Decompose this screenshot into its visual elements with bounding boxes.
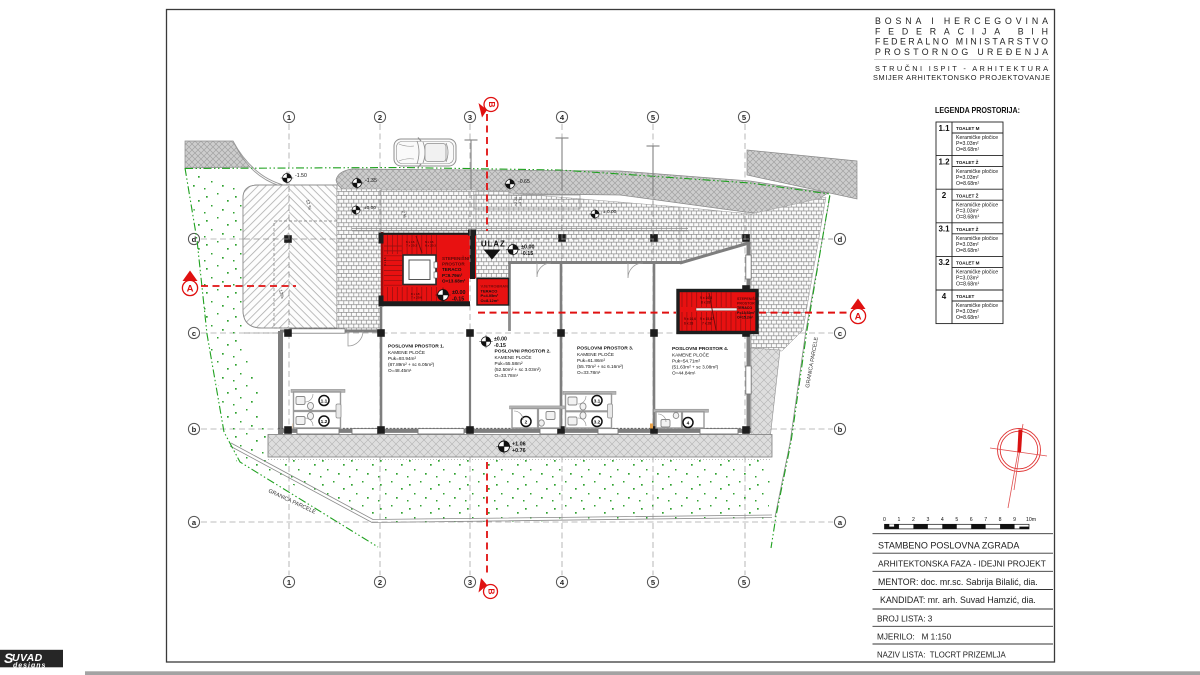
svg-text:KAMENE PLOČE: KAMENE PLOČE bbox=[672, 352, 709, 358]
svg-text:3.2: 3.2 bbox=[938, 258, 950, 267]
svg-text:-1.50: -1.50 bbox=[295, 173, 307, 179]
svg-text:POSLOVNI PROSTOR 2.: POSLOVNI PROSTOR 2. bbox=[495, 349, 552, 355]
svg-text:O=44.84m¹: O=44.84m¹ bbox=[672, 371, 696, 376]
svg-text:NAZIV LISTA: TLOCRT PRIZEMLJA: NAZIV LISTA: TLOCRT PRIZEMLJA bbox=[877, 650, 1006, 659]
svg-text:1: 1 bbox=[898, 517, 901, 523]
svg-text:TOALET Ž: TOALET Ž bbox=[956, 158, 979, 165]
svg-text:B: B bbox=[487, 101, 497, 107]
svg-text:O=15.2m¹: O=15.2m¹ bbox=[737, 315, 754, 319]
svg-text:SMIJER ARHITEKTONSKO PROJEKTOV: SMIJER ARHITEKTONSKO PROJEKTOVANJE bbox=[873, 73, 1050, 82]
svg-text:Puk=55.58m²: Puk=55.58m² bbox=[495, 361, 523, 366]
svg-text:TOALET: TOALET bbox=[956, 294, 974, 299]
svg-text:Puk=61.86m²: Puk=61.86m² bbox=[577, 358, 605, 363]
svg-text:B: B bbox=[486, 588, 496, 594]
svg-text:TOALET M: TOALET M bbox=[956, 126, 980, 131]
svg-text:6 x 28: 6 x 28 bbox=[684, 321, 693, 325]
svg-text:MENTOR: doc. mr.sc. Sabrija Bi: MENTOR: doc. mr.sc. Sabrija Bilalić, dia… bbox=[878, 577, 1038, 587]
svg-text:3.1: 3.1 bbox=[594, 398, 601, 404]
svg-text:FEDERALNO MINISTARSTVO: FEDERALNO MINISTARSTVO bbox=[875, 37, 1048, 47]
svg-text:1.1: 1.1 bbox=[321, 398, 328, 404]
svg-text:designs: designs bbox=[13, 663, 46, 670]
svg-text:6 x 29.3: 6 x 29.3 bbox=[425, 244, 436, 248]
svg-text:9: 9 bbox=[1013, 517, 1016, 523]
svg-text:TOALET M: TOALET M bbox=[956, 261, 980, 266]
svg-text:STAMBENO POSLOVNA ZGRADA: STAMBENO POSLOVNA ZGRADA bbox=[878, 541, 1019, 551]
svg-text:d: d bbox=[192, 235, 197, 244]
svg-text:2: 2 bbox=[378, 578, 382, 587]
svg-text:O=33.78m¹: O=33.78m¹ bbox=[577, 370, 601, 375]
svg-text:9 x 16,6: 9 x 16,6 bbox=[684, 317, 696, 321]
svg-text:TERACO: TERACO bbox=[442, 267, 462, 272]
svg-text:(52.50m² + sc 3.03m²): (52.50m² + sc 3.03m²) bbox=[495, 367, 542, 372]
svg-text:+1.06: +1.06 bbox=[512, 442, 526, 448]
svg-text:POSLOVNI PROSTOR 4.: POSLOVNI PROSTOR 4. bbox=[672, 346, 729, 352]
svg-text:P=13.52m²: P=13.52m² bbox=[737, 311, 756, 315]
svg-text:O=8.68m¹: O=8.68m¹ bbox=[956, 214, 979, 220]
svg-text:-0.65: -0.65 bbox=[518, 179, 530, 185]
svg-text:O=8.68m¹: O=8.68m¹ bbox=[956, 248, 979, 254]
svg-text:±0.00: ±0.00 bbox=[521, 245, 534, 251]
svg-text:3: 3 bbox=[926, 517, 929, 523]
svg-text:b: b bbox=[838, 425, 843, 434]
svg-text:3: 3 bbox=[468, 578, 472, 587]
svg-text:O=48.45m¹: O=48.45m¹ bbox=[388, 368, 412, 373]
svg-text:7: 7 bbox=[984, 517, 987, 523]
svg-text:7 x 29.3: 7 x 29.3 bbox=[406, 244, 417, 248]
svg-text:ULAZ: ULAZ bbox=[481, 240, 506, 249]
svg-text:O=8.12m¹: O=8.12m¹ bbox=[481, 298, 500, 303]
svg-text:7 x 29.6: 7 x 29.6 bbox=[411, 296, 422, 300]
svg-text:±0,00: ±0,00 bbox=[364, 205, 376, 211]
svg-text:+2.20: +2.20 bbox=[514, 197, 518, 206]
svg-text:4 x 16: 4 x 16 bbox=[383, 257, 387, 266]
svg-text:MJERILO: M 1:150: MJERILO: M 1:150 bbox=[877, 633, 952, 642]
svg-text:(51.63m² + sc 3.08m²): (51.63m² + sc 3.08m²) bbox=[672, 365, 719, 370]
svg-text:PROSTOR: PROSTOR bbox=[442, 262, 465, 267]
svg-text:TOALET Ž: TOALET Ž bbox=[956, 191, 979, 198]
svg-text:Puk=93.94m²: Puk=93.94m² bbox=[388, 356, 416, 361]
svg-text:±0.00: ±0.00 bbox=[494, 337, 507, 343]
svg-text:5: 5 bbox=[955, 517, 958, 523]
svg-text:4: 4 bbox=[941, 517, 944, 523]
svg-text:-0.15: -0.15 bbox=[452, 297, 464, 303]
svg-text:TOALET Ž: TOALET Ž bbox=[956, 225, 979, 232]
svg-text:PROSTOR: PROSTOR bbox=[737, 302, 755, 306]
svg-text:2: 2 bbox=[942, 191, 947, 200]
svg-text:c: c bbox=[838, 329, 842, 338]
svg-text:3.2: 3.2 bbox=[594, 419, 601, 425]
svg-text:0: 0 bbox=[883, 517, 886, 523]
svg-text:±0.00: ±0.00 bbox=[452, 290, 465, 296]
svg-text:O=13.68m¹: O=13.68m¹ bbox=[442, 278, 466, 283]
svg-text:9 x 15,87: 9 x 15,87 bbox=[700, 317, 714, 321]
svg-text:POSLOVNI PROSTOR 1.: POSLOVNI PROSTOR 1. bbox=[388, 344, 445, 350]
svg-text:POSLOVNI PROSTOR 3.: POSLOVNI PROSTOR 3. bbox=[577, 346, 634, 352]
svg-text:KAMENE PLOČE: KAMENE PLOČE bbox=[577, 351, 614, 357]
svg-text:-0.15: -0.15 bbox=[494, 343, 506, 349]
svg-text:A: A bbox=[187, 284, 194, 295]
svg-text:(55.70m² + sc 6.16m²): (55.70m² + sc 6.16m²) bbox=[577, 364, 624, 369]
svg-text:3.1: 3.1 bbox=[938, 225, 950, 234]
svg-text:8 x 28: 8 x 28 bbox=[701, 300, 710, 304]
svg-text:STEPENIŠNI: STEPENIŠNI bbox=[737, 296, 758, 301]
svg-text:1.1: 1.1 bbox=[938, 124, 950, 133]
svg-text:± 0.00: ± 0.00 bbox=[603, 209, 617, 215]
svg-text:STEPENIŠNI: STEPENIŠNI bbox=[442, 254, 469, 261]
svg-text:O=33.78m¹: O=33.78m¹ bbox=[495, 373, 519, 378]
svg-text:KANDIDAT: mr. arh. Suvad Hamzi: KANDIDAT: mr. arh. Suvad Hamzić, dia. bbox=[880, 595, 1036, 605]
svg-text:A: A bbox=[855, 312, 862, 323]
svg-text:+0.76: +0.76 bbox=[512, 448, 526, 454]
svg-text:+4.10: +4.10 bbox=[519, 197, 523, 206]
svg-text:KAMENE PLOČE: KAMENE PLOČE bbox=[388, 349, 425, 355]
svg-text:2: 2 bbox=[378, 113, 382, 122]
svg-text:3: 3 bbox=[468, 113, 472, 122]
svg-text:1.2: 1.2 bbox=[321, 419, 328, 425]
svg-text:P=9.79m²: P=9.79m² bbox=[442, 273, 463, 278]
svg-text:2: 2 bbox=[912, 517, 915, 523]
svg-text:8: 8 bbox=[999, 517, 1002, 523]
svg-text:TERACO: TERACO bbox=[737, 306, 752, 310]
svg-text:O=8.68m¹: O=8.68m¹ bbox=[956, 147, 979, 153]
svg-text:FEDERACIJA BIH: FEDERACIJA BIH bbox=[875, 26, 1048, 36]
svg-text:LEGENDA PROSTORIJA:: LEGENDA PROSTORIJA: bbox=[935, 106, 1020, 115]
svg-text:7 x 28: 7 x 28 bbox=[702, 321, 711, 325]
svg-text:c: c bbox=[192, 329, 196, 338]
svg-text:(87.89m² + sc 6.05m²): (87.89m² + sc 6.05m²) bbox=[388, 362, 435, 367]
svg-text:10m: 10m bbox=[1026, 517, 1036, 523]
svg-text:1.2: 1.2 bbox=[938, 157, 950, 166]
svg-text:9 x 16,5: 9 x 16,5 bbox=[700, 296, 712, 300]
svg-text:6: 6 bbox=[970, 517, 973, 523]
svg-text:d: d bbox=[838, 235, 843, 244]
svg-text:BROJ LISTA: 3: BROJ LISTA: 3 bbox=[877, 615, 933, 624]
svg-text:Puk=54.71m²: Puk=54.71m² bbox=[672, 359, 700, 364]
svg-text:O=8.68m¹: O=8.68m¹ bbox=[956, 315, 979, 321]
svg-text:O=8.68m¹: O=8.68m¹ bbox=[956, 282, 979, 288]
svg-text:ARHITEKTONSKA FAZA - IDEJNI PR: ARHITEKTONSKA FAZA - IDEJNI PROJEKT bbox=[878, 559, 1046, 569]
svg-text:b: b bbox=[192, 425, 197, 434]
svg-text:O=8.68m¹: O=8.68m¹ bbox=[956, 181, 979, 187]
svg-text:-0.15: -0.15 bbox=[521, 251, 533, 257]
svg-text:-1.35: -1.35 bbox=[365, 178, 377, 184]
svg-text:2: 2 bbox=[525, 419, 528, 425]
svg-text:4: 4 bbox=[942, 292, 947, 301]
svg-text:KAMENE PLOČE: KAMENE PLOČE bbox=[495, 354, 532, 360]
svg-text:4: 4 bbox=[687, 420, 690, 426]
